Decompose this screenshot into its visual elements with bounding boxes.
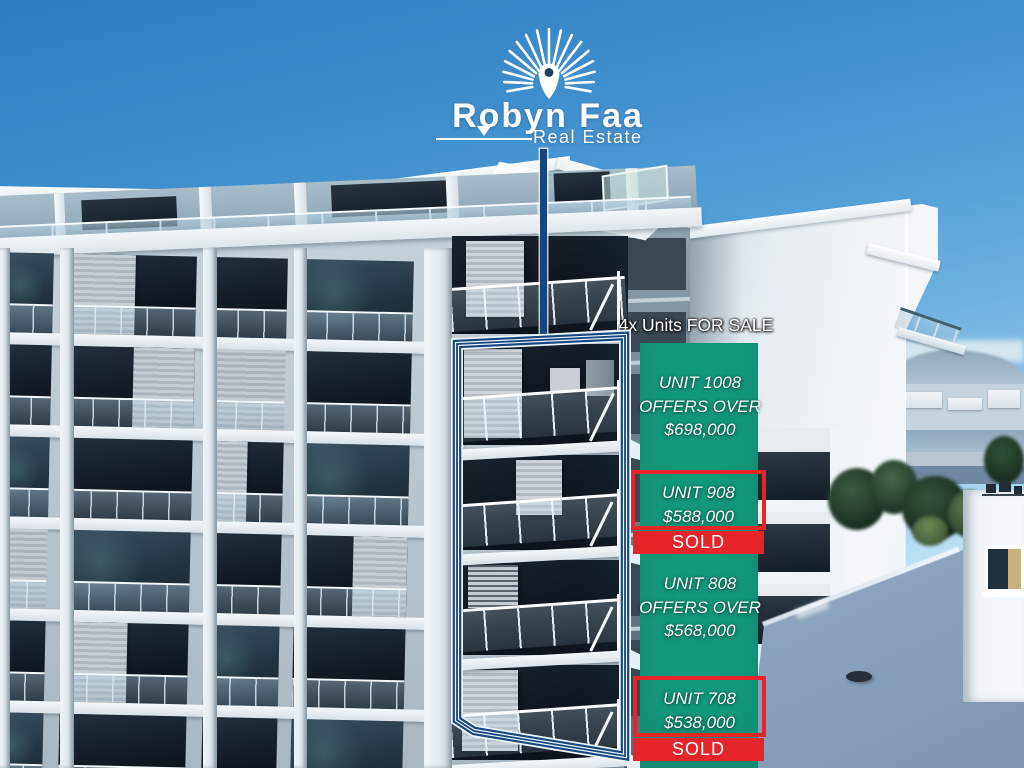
logo-divider: [436, 138, 532, 140]
unit-name: UNIT 908: [631, 481, 766, 505]
unit-name: UNIT 708: [633, 687, 766, 711]
sold-banner-908: SOLD: [633, 531, 764, 554]
railing-post: [617, 699, 620, 756]
railing-post: [617, 489, 620, 546]
unit-terms: OFFERS OVER: [618, 395, 782, 419]
unit-price: $698,000: [618, 418, 782, 442]
unit-card-1008: UNIT 1008 OFFERS OVER $698,000: [618, 371, 782, 442]
unit-price: $588,000: [631, 505, 766, 529]
for-sale-label: 4x Units FOR SALE: [596, 315, 796, 339]
fan-pin-icon: [494, 28, 604, 106]
brand-logo: Robyn Faa Real Estate: [420, 26, 676, 156]
unit-card-708: UNIT 708 $538,000: [633, 687, 766, 734]
real-estate-marketing-photo: UNIT 1008 OFFERS OVER $698,000 UNIT 908 …: [0, 0, 1024, 768]
unit-terms: OFFERS OVER: [618, 596, 782, 620]
facade-pier: [60, 248, 74, 768]
unit-price: $568,000: [618, 619, 782, 643]
sold-banner-708: SOLD: [633, 738, 764, 761]
shutter-panel: [468, 565, 518, 609]
unit-price: $538,000: [633, 711, 766, 735]
unit-card-908: UNIT 908 $588,000: [631, 481, 766, 528]
brand-pin-accent: [477, 126, 491, 136]
corner-balcony: [452, 455, 628, 550]
unit-name: UNIT 808: [618, 572, 782, 596]
corner-balcony: [452, 560, 628, 655]
corner-balcony: [452, 344, 628, 445]
corner-balcony: [452, 665, 628, 760]
unit-card-808: UNIT 808 OFFERS OVER $568,000: [618, 572, 782, 643]
unit-name: UNIT 1008: [618, 371, 782, 395]
facade-pier: [0, 248, 10, 768]
brand-tagline: Real Estate: [533, 127, 643, 148]
facade-pier: [424, 248, 452, 768]
pointer-line: [540, 149, 547, 342]
facade-pier: [294, 248, 307, 768]
facade-pier: [203, 248, 217, 768]
